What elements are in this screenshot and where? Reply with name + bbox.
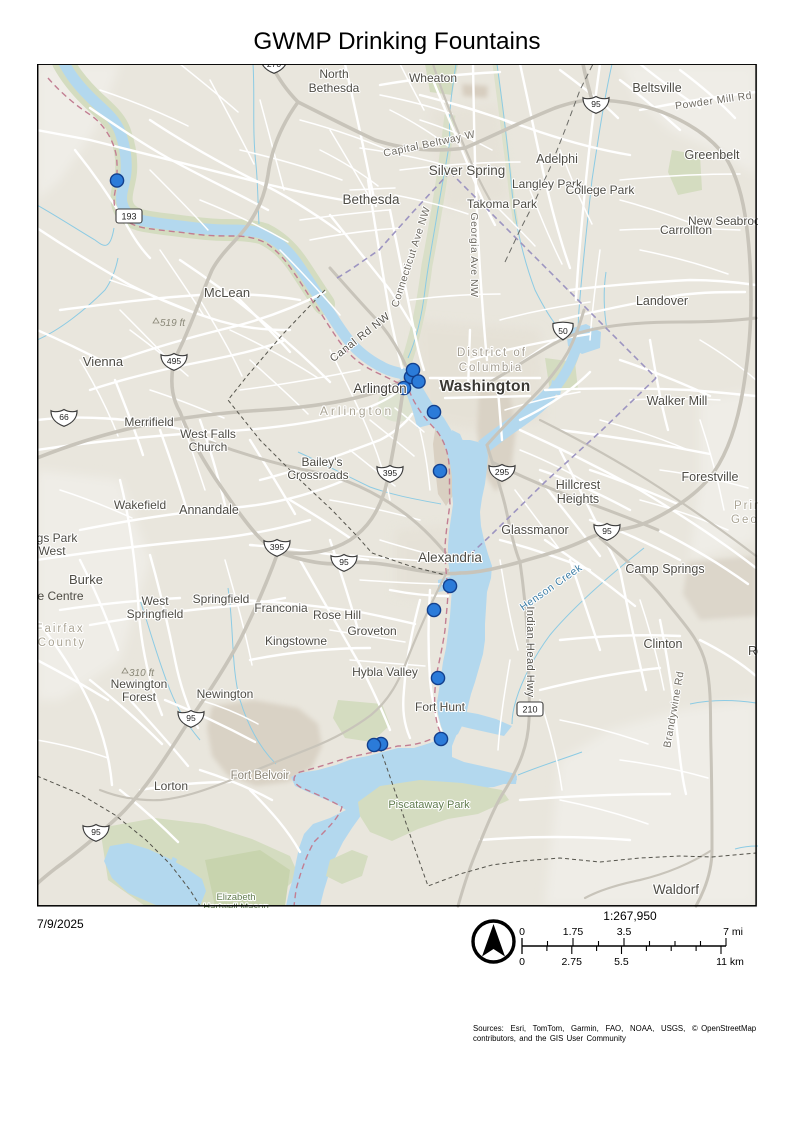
svg-text:Indian Head Hwy: Indian Head Hwy — [524, 606, 536, 697]
svg-text:McLean: McLean — [204, 285, 250, 300]
svg-text:Hartwell Mason: Hartwell Mason — [203, 902, 268, 908]
svg-text:Bethesda: Bethesda — [309, 81, 360, 95]
svg-text:Arlington: Arlington — [353, 381, 406, 396]
svg-text:College Park: College Park — [566, 183, 636, 197]
svg-text:Seabroo: Seabroo — [715, 214, 758, 228]
svg-text:95: 95 — [339, 557, 349, 567]
svg-text:Prince: Prince — [734, 500, 758, 512]
svg-text:Kingstowne: Kingstowne — [265, 634, 327, 648]
svg-text:Wakefield: Wakefield — [114, 498, 166, 512]
svg-text:gs Park: gs Park — [37, 531, 78, 545]
svg-text:3.5: 3.5 — [617, 926, 632, 938]
svg-text:95: 95 — [602, 526, 612, 536]
svg-text:County: County — [38, 637, 86, 649]
svg-text:1.75: 1.75 — [563, 926, 584, 938]
svg-text:Springfield: Springfield — [127, 607, 184, 621]
svg-text:Clinton: Clinton — [644, 637, 683, 651]
svg-text:Arlington: Arlington — [320, 404, 394, 418]
svg-text:North: North — [319, 67, 348, 81]
svg-text:Alexandria: Alexandria — [418, 550, 482, 565]
svg-text:95: 95 — [91, 827, 101, 837]
svg-text:Newington: Newington — [111, 677, 168, 691]
svg-text:Franconia: Franconia — [254, 601, 308, 615]
svg-text:0: 0 — [519, 956, 525, 968]
svg-text:5.5: 5.5 — [614, 956, 629, 968]
svg-text:e Centre: e Centre — [38, 589, 84, 603]
svg-text:Bethesda: Bethesda — [342, 192, 400, 207]
svg-text:Newington: Newington — [197, 687, 254, 701]
svg-text:Vienna: Vienna — [83, 354, 124, 369]
svg-text:Columbia: Columbia — [459, 362, 524, 374]
svg-text:Piscataway Park: Piscataway Park — [388, 799, 470, 811]
svg-text:Hybla Valley: Hybla Valley — [352, 665, 418, 679]
svg-text:Greenbelt: Greenbelt — [685, 148, 740, 162]
svg-text:7 mi: 7 mi — [723, 926, 743, 938]
svg-text:Rose Hill: Rose Hill — [313, 608, 361, 622]
svg-text:Carrollton: Carrollton — [660, 223, 712, 237]
svg-text:50: 50 — [558, 326, 568, 336]
svg-text:Fort Hunt: Fort Hunt — [415, 700, 466, 714]
svg-text:George: George — [731, 514, 758, 526]
svg-text:Forestville: Forestville — [682, 470, 739, 484]
svg-text:Hillcrest: Hillcrest — [556, 478, 601, 492]
svg-text:95: 95 — [591, 99, 601, 109]
svg-text:Georgia Ave NW: Georgia Ave NW — [468, 212, 480, 297]
svg-text:Burke: Burke — [69, 572, 103, 587]
svg-text:West: West — [141, 594, 169, 608]
svg-text:519 ft: 519 ft — [160, 318, 186, 329]
svg-text:Silver Spring: Silver Spring — [429, 163, 506, 178]
svg-text:Crossroads: Crossroads — [287, 468, 348, 482]
svg-text:Walker Mill: Walker Mill — [647, 394, 708, 408]
svg-text:West Falls: West Falls — [180, 427, 236, 441]
svg-text:Camp Springs: Camp Springs — [625, 562, 704, 576]
svg-text:295: 295 — [495, 467, 509, 477]
svg-text:Washington: Washington — [439, 378, 530, 395]
svg-text:495: 495 — [167, 356, 181, 366]
svg-text:11 km: 11 km — [716, 956, 744, 968]
svg-text:95: 95 — [186, 713, 196, 723]
svg-text:Waldorf: Waldorf — [653, 882, 699, 897]
svg-text:Glassmanor: Glassmanor — [501, 523, 568, 537]
svg-text:210: 210 — [522, 704, 537, 714]
svg-text:Church: Church — [189, 440, 228, 454]
svg-text:Springfield: Springfield — [193, 592, 250, 606]
svg-text:Wheaton: Wheaton — [409, 71, 457, 85]
svg-text:Takoma Park: Takoma Park — [467, 197, 538, 211]
svg-text:District of: District of — [457, 347, 527, 359]
svg-text:Heights: Heights — [557, 492, 599, 506]
svg-text:395: 395 — [383, 468, 397, 478]
svg-text:Beltsville: Beltsville — [632, 81, 681, 95]
svg-text:Fort Belvoir: Fort Belvoir — [231, 770, 290, 782]
svg-text:310 ft: 310 ft — [129, 668, 155, 679]
svg-text:Bailey's: Bailey's — [302, 455, 343, 469]
svg-text:West: West — [38, 544, 66, 558]
svg-text:193: 193 — [121, 211, 136, 221]
svg-text:Groveton: Groveton — [347, 624, 396, 638]
svg-text:0: 0 — [519, 926, 525, 938]
svg-text:Fairfax: Fairfax — [37, 623, 85, 635]
svg-text:Merrifield: Merrifield — [124, 415, 173, 429]
svg-text:Forest: Forest — [122, 690, 157, 704]
svg-text:2.75: 2.75 — [561, 956, 582, 968]
svg-text:395: 395 — [270, 542, 284, 552]
svg-text:Annandale: Annandale — [179, 503, 239, 517]
svg-text:Landover: Landover — [636, 294, 688, 308]
svg-text:66: 66 — [59, 412, 69, 422]
svg-text:Lorton: Lorton — [154, 779, 188, 793]
svg-text:Adelphi: Adelphi — [536, 152, 578, 166]
